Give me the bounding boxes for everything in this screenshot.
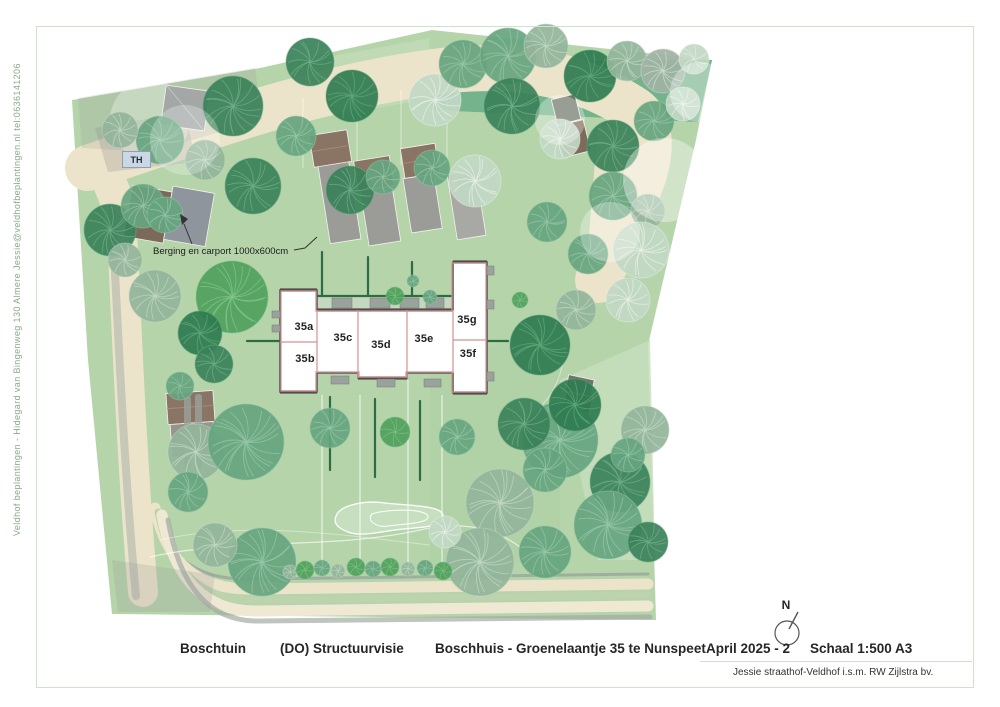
tree (556, 290, 596, 330)
tree (466, 469, 534, 537)
tree (498, 398, 550, 450)
tree (314, 560, 330, 576)
tree (326, 70, 378, 122)
tree (108, 243, 142, 277)
unit-label-35g: 35g (457, 314, 477, 326)
garden-name: Boschtuin (180, 641, 246, 656)
date-label: April 2025 - 2 (706, 641, 790, 656)
tree (296, 561, 314, 579)
tree (484, 78, 540, 134)
tree (414, 150, 450, 186)
tree (193, 523, 237, 567)
carport-annotation: Berging en carport 1000x600cm (153, 246, 288, 257)
tree (365, 561, 381, 577)
credit-line: Jessie straathof-Veldhof i.s.m. RW Zijls… (733, 667, 933, 678)
designer-contact-sidebar: Veldhof beplantingen - Hidegard van Bing… (8, 55, 26, 545)
tree (166, 372, 194, 400)
phase-label: (DO) Structuurvisie (280, 641, 404, 656)
tree (283, 565, 297, 579)
tree (310, 408, 350, 448)
tree (331, 564, 345, 578)
tree (380, 417, 410, 447)
tree (423, 290, 437, 304)
tree (195, 345, 233, 383)
th-marker: TH (122, 151, 151, 168)
tree (208, 404, 284, 480)
tree (434, 562, 452, 580)
tree (129, 270, 181, 322)
tree (381, 558, 399, 576)
tree (449, 155, 501, 207)
tree (524, 24, 568, 68)
tree (276, 116, 316, 156)
scale-label: Schaal 1:500 A3 (810, 641, 912, 656)
tree (102, 112, 138, 148)
tree (429, 516, 461, 548)
site-plan-drawing (0, 0, 1000, 707)
tree (439, 40, 487, 88)
tree (606, 278, 650, 322)
tree (628, 522, 668, 562)
tree (439, 419, 475, 455)
tree (386, 287, 404, 305)
unit-label-35c: 35c (334, 332, 353, 344)
tree (147, 197, 183, 233)
project-address: Boschhuis - Groenelaantje 35 te Nunspeet (435, 641, 706, 656)
tree (366, 160, 400, 194)
tree (407, 275, 419, 287)
unit-label-35b: 35b (295, 353, 315, 365)
north-label: N (782, 598, 791, 612)
tree (401, 562, 415, 576)
unit-label-35d: 35d (371, 339, 391, 351)
tree (225, 158, 281, 214)
tree (527, 202, 567, 242)
credit-divider (700, 661, 972, 662)
tree (549, 379, 601, 431)
tree (347, 558, 365, 576)
unit-label-35a: 35a (295, 321, 314, 333)
tree (611, 438, 645, 472)
tree (523, 448, 567, 492)
tree (417, 560, 433, 576)
tree (512, 292, 528, 308)
unit-label-35f: 35f (460, 348, 477, 360)
tree (286, 38, 334, 86)
tree (228, 528, 296, 596)
unit-label-35e: 35e (415, 333, 434, 345)
tree (519, 526, 571, 578)
tree (168, 472, 208, 512)
tree (510, 315, 570, 375)
